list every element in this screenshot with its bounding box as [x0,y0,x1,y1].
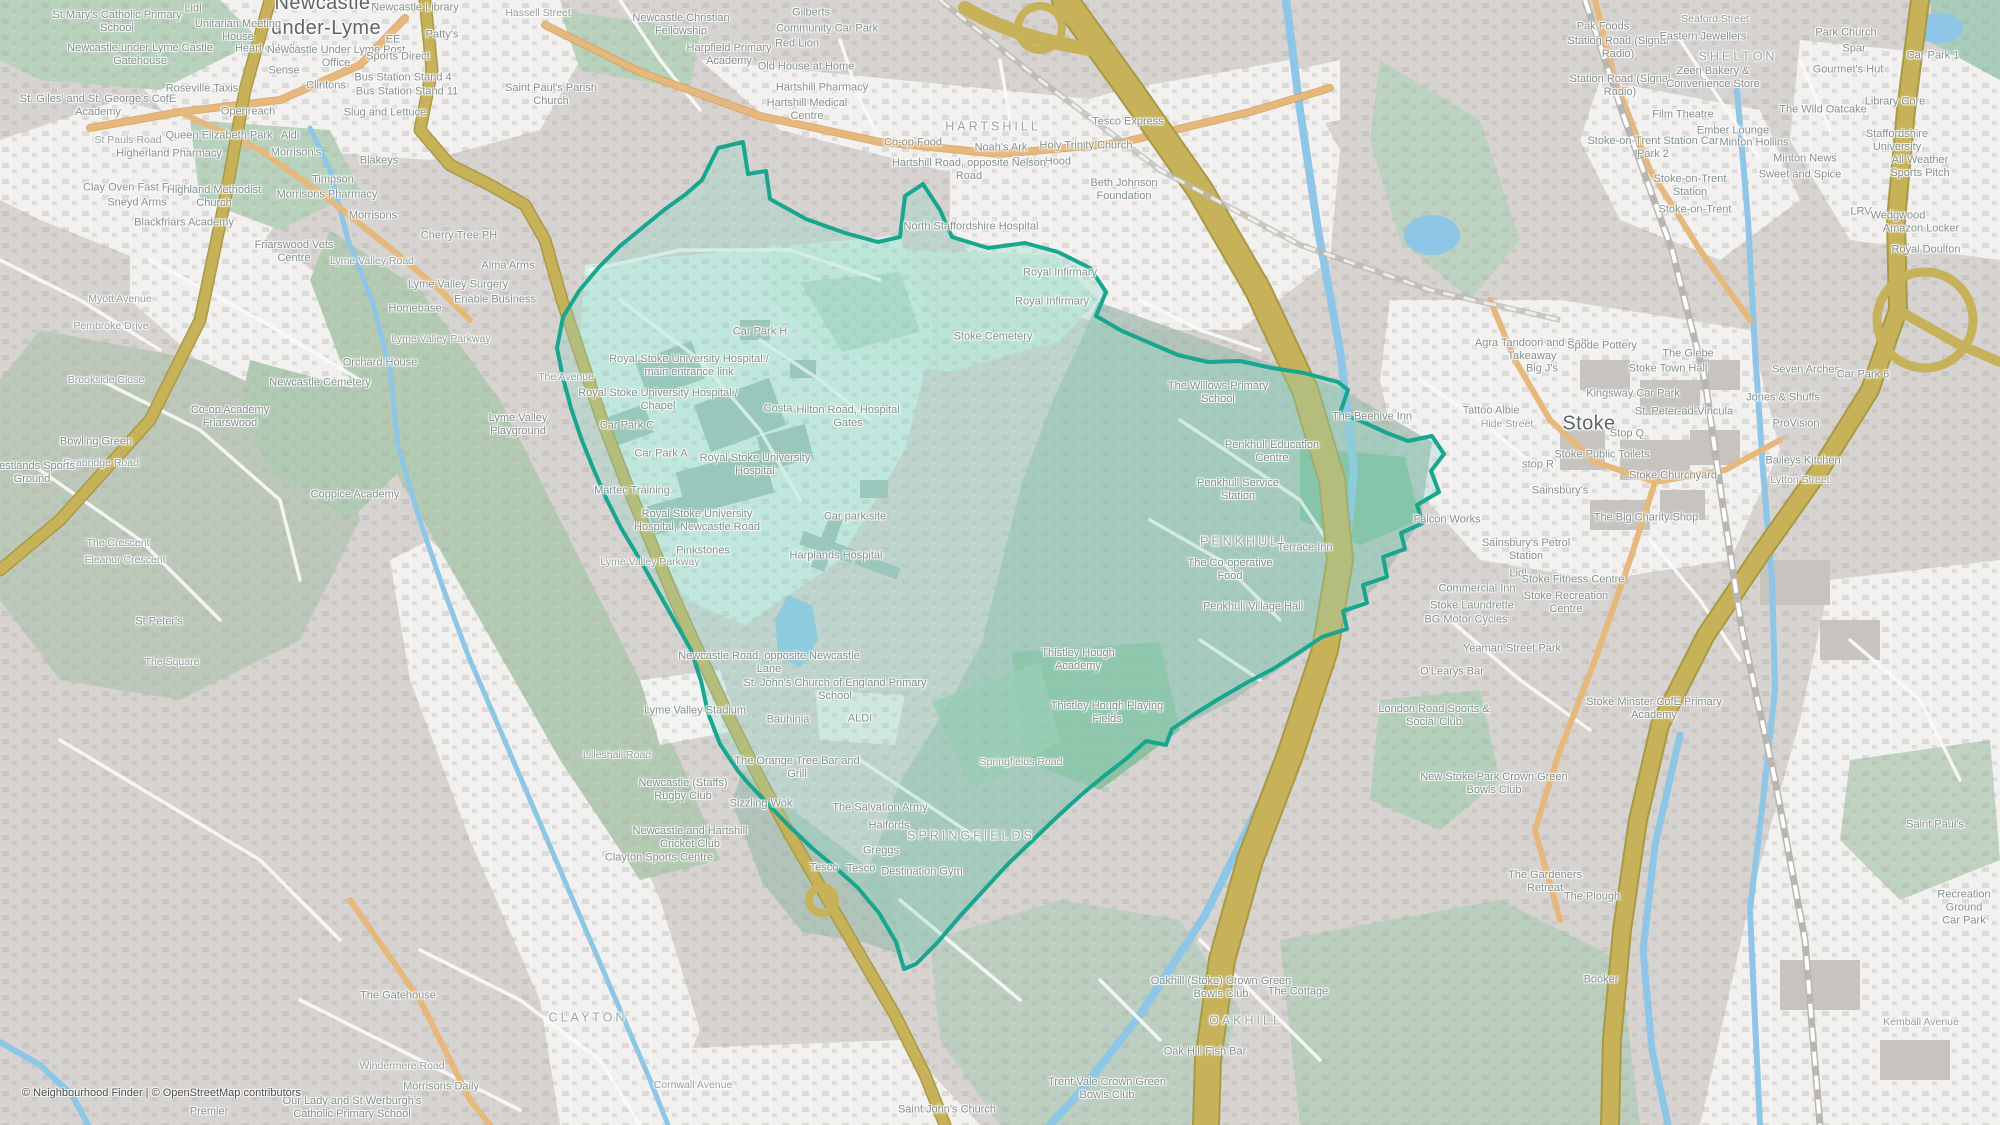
road-label: St Pauls Road [94,134,161,146]
district-label: SHELTON [1699,50,1778,65]
poi-label: Newcastle Christian Fellowship [616,12,746,38]
road-label: The Avenue [538,371,594,383]
poi-label: Jones & Shuffs [1746,392,1820,405]
poi-label: Minton Hollins [1719,137,1788,150]
poi-label: Orchard House [343,357,418,370]
poi-label: Falcon Works [1413,514,1480,527]
poi-label: Holy Trinity Church [1040,140,1133,153]
poi-label: Stoke Laundrette [1430,600,1514,613]
poi-label: Costa [764,403,793,416]
poi-label: Thistley Hough Academy [1018,647,1138,673]
poi-label: The Plough [1564,891,1620,904]
poi-label: Stoke-on-Trent Station Car Park 2 [1578,135,1728,161]
poi-label: Penkhull Education Centre [1212,439,1332,465]
road-label: Kemball Avenue [1883,1016,1959,1028]
poi-label: Old House at Home [758,61,855,74]
poi-label: Penkhull Service Station [1183,477,1293,503]
poi-label: Royal Doulton [1891,244,1960,257]
poi-label: EE [386,34,401,47]
poi-label: Co-op Academy Friarswood [170,404,290,430]
poi-label: Bus Station Stand 4 [354,72,451,85]
poi-label: Spar [1842,43,1865,56]
poi-label: The Glebe [1662,348,1713,361]
poi-label: stop R [1522,459,1554,472]
road-label: Hide Street [1481,418,1534,430]
poi-label: Newcastle Under Lyme Post Office [256,44,416,70]
poi-label: Stoke Town Hall [1629,363,1708,376]
poi-label: The Co-operative Food [1175,557,1285,583]
poi-label: Gilberts [792,7,830,20]
poi-label: Hartshill Road, opposite Nelson Road [879,157,1059,183]
poi-label: Lyme Valley Stadium [644,705,746,718]
poi-label: Thistley Hough Playing Fields [1047,700,1167,726]
road-label: Cornwall Avenue [654,1079,733,1091]
poi-label: Station Road (Signal Radio) [1565,73,1675,99]
poi-label: Beth Johnson Foundation [1069,177,1179,203]
poi-label: Lyme Valley Playground [468,412,568,438]
road-label: Brookside Close [68,374,144,386]
poi-label: Highland Methodist Church [159,184,269,210]
poi-label: Saint Paul's Parish Church [496,82,606,108]
road-label: Myott Avenue [88,293,151,305]
poi-label: Royal Stoke University Hospital / Chapel [573,387,743,413]
poi-label: Spode Pottery [1567,340,1637,353]
poi-label: Car Park 1 [1907,50,1960,63]
poi-label: Penkhull Village Hall [1203,601,1303,614]
poi-label: Hartshill Pharmacy [776,82,868,95]
poi-label: ALDI [848,713,872,726]
poi-label: Harplands Hospital [790,550,883,563]
poi-label: Amazon Locker [1883,223,1959,236]
poi-label: Royal Infirmary [1023,267,1097,280]
poi-label: Blackfriars Academy [134,217,234,230]
poi-label: London Road Sports & Social Club [1364,703,1504,729]
poi-label: Royal Stoke University Hospital, Newcast… [622,508,772,534]
road-label: The Square [145,656,200,668]
poi-label: Baileys Kitchen [1765,455,1840,468]
poi-label: Robin Hood [1013,156,1071,169]
poi-label: Greggs [863,845,899,858]
poi-label: Seven Arches [1772,364,1840,377]
poi-label: Lidl [1509,568,1526,581]
poi-label: LRV [1850,206,1871,219]
city-label: Newcastle-under-Lyme [261,0,391,41]
poi-label: Morrisons Daily [403,1081,479,1094]
poi-label: Sense [268,65,299,78]
poi-label: Hartshill Medical Centre [752,97,862,123]
road-label: Seabridge Road [63,457,139,469]
poi-label: Recreation Ground Car Park [1937,889,1990,928]
poi-label: Sports Direct [366,51,430,64]
poi-label: Westlands Sports Ground [0,460,82,486]
poi-label: Openreach [221,106,275,119]
poi-label: Car Park 6 [1837,369,1890,382]
road-label: Pembroke Drive [73,320,148,332]
poi-label: Minton News [1773,153,1837,166]
poi-label: St. John's Church of England Primary Sch… [740,677,930,703]
district-label: CLAYTON [549,1011,628,1026]
poi-label: Sainsbury's [1532,485,1589,498]
poi-label: St Mary's Catholic Primary School [42,9,192,35]
poi-label: Destination Gym [881,866,962,879]
poi-label: The Beehive Inn [1332,411,1412,424]
poi-label: Tesco [847,863,876,876]
poi-label: The Gatehouse [360,990,436,1003]
poi-label: Tesco [810,862,839,875]
poi-label: Halfords [869,820,910,833]
poi-label: Clayton Sports Centre [605,852,713,865]
poi-label: Aldi [281,130,299,143]
poi-label: Newcastle Library [371,2,458,15]
road-label: Lilleshall Road [583,749,651,761]
poi-label: BG Motor Cycles [1424,614,1507,627]
poi-label: Stoke Minster CofE Primary Academy [1579,696,1729,722]
poi-label: Blakeys [360,155,399,168]
poi-label: Zeen Bakery & Convenience Store [1643,65,1783,91]
poi-label: The Willows Primary School [1158,380,1278,406]
poi-label: Stoke-on-Trent Station [1635,173,1745,199]
poi-label: Film Theatre [1652,109,1714,122]
poi-label: Lidl [184,3,201,16]
poi-label: Queen Elizabeth Park [165,130,272,143]
poi-label: Newcastle Cemetery [269,377,370,390]
poi-label: All Weather Sports Pitch [1880,154,1960,180]
poi-label: The Gardeners Retreat [1495,869,1595,895]
district-label: SPRINGFIELDS [907,829,1035,844]
poi-label: Saint Paul's [1906,819,1964,832]
poi-label: The Salvation Army [832,802,927,815]
poi-label: Slug and Lettuce [344,107,427,120]
poi-label: Morrisons [349,210,397,223]
poi-label: Newcastle under Lyme Castle Gatehouse [55,42,225,68]
poi-label: Harpfield Primary Academy [669,42,789,68]
poi-label: The Wild Oatcake [1779,104,1866,117]
poi-label: Premier [190,1106,229,1119]
poi-label: New Stoke Park Crown Green Bowls Club [1419,771,1569,797]
poi-label: Bauhinia [767,714,810,727]
poi-label: Pak Foods [1577,21,1630,34]
poi-label: Enable Business [454,294,536,307]
poi-label: North Staffordshire Hospital [904,221,1039,234]
road-label: Springfields Road [980,756,1063,768]
poi-label: Stop Q [1610,428,1644,441]
road-label: Lytton Street [1770,474,1829,486]
poi-label: Pinkstones [676,545,730,558]
poi-label: Martec Training [594,485,670,498]
poi-label: Patty's [426,29,459,42]
poi-label: Red Lion [775,38,819,51]
poi-label: Gourmet's Hut [1813,64,1884,77]
road-label: The Crescent [86,537,149,549]
poi-label: St Peter's [135,616,182,629]
poi-label: The Orange Tree Bar and Grill [732,755,862,781]
road-label: Seaford Street [1681,13,1749,25]
poi-label: Roseville Taxis [166,83,239,96]
poi-label: Bowling Green [60,436,132,449]
poi-label: Sweet and Spice [1759,169,1842,182]
poi-label: The Cottage [1268,986,1329,999]
poi-label: Eastern Jewellers [1660,31,1747,44]
poi-label: Stoke Cemetery [954,331,1033,344]
poi-label: Commercial Inn [1438,583,1515,596]
poi-label: Bus Station Stand 11 [356,86,459,99]
poi-label: Stoke Recreation Centre [1511,590,1621,616]
poi-label: Friarswood Vets Centre [239,239,349,265]
poi-label: St. Peter-ad-Vincula [1635,406,1733,419]
poi-label: Community Car Park [776,23,878,36]
poi-label: The Big Charity Shop [1594,512,1699,525]
poi-label: Car Park C [600,420,654,433]
poi-label: Car park site [824,511,886,524]
road-label: Lyme Valley Parkway [391,333,490,345]
poi-label: Car Park H [733,326,787,339]
poi-label: Sizzling Wok [730,798,793,811]
poi-label: Oakhill (Stoke) Crown Green Bowls Club [1141,975,1301,1001]
poi-label: Agra Tandoori and Balti Takeaway [1462,337,1602,363]
map-attribution[interactable]: © Neighbourhood Finder | © OpenStreetMap… [22,1087,301,1099]
poi-label: Heart of India [235,43,301,56]
poi-label: Cherry Tree PH [421,230,497,243]
poi-label: Sainsbury's Petrol Station [1476,537,1576,563]
road-label: Lyme Valley Road [330,255,414,267]
poi-label: Clintons [306,80,346,93]
poi-label: Royal Stoke University Hospital [690,452,820,478]
city-label: Stoke [1562,412,1615,437]
poi-label: Booker [1584,974,1619,987]
poi-label: Staffordshire University [1846,128,1949,154]
poi-label: Saint John's Church [898,1104,996,1117]
poi-label: ProVision [1773,418,1820,431]
poi-label: Big J's [1526,363,1558,376]
poi-label: St. Giles' and St. George's CofE Academy [18,93,178,119]
poi-label: Stoke Churchyard [1629,470,1717,483]
poi-label: Noah's Ark [975,142,1028,155]
poi-label: Higherland Pharmacy [116,148,222,161]
poi-label: Tattoo Albie [1463,405,1520,418]
poi-label: Tesco Express [1092,116,1164,129]
road-label: Windermere Road [359,1060,444,1072]
poi-label: Royal Infirmary [1015,296,1089,309]
poi-label: Park Church [1815,27,1876,40]
poi-label: Alma Arms [481,260,534,273]
poi-label: Clay Oven Fast Food [83,182,187,195]
poi-label: Newcastle (Staffs) Rugby Club [628,777,738,803]
poi-label: Wedgwood [1871,210,1926,223]
poi-label: Stoke Fitness Centre [1522,574,1625,587]
poi-label: Trent Vale Crown Green Bowls Club [1037,1076,1177,1102]
poi-label: O'Learys Bar [1420,666,1484,679]
district-label: HARTSHILL [945,120,1041,135]
poi-label: Homebase [388,303,441,316]
poi-label: Morrisons Pharmacy [277,189,378,202]
poi-label: Library Core [1865,96,1926,109]
poi-label: Unitarian Meeting House [183,18,293,44]
district-label: PENKHULL [1200,535,1290,550]
poi-label: Lyme Valley Surgery [408,279,508,292]
poi-label: Station Road (Signal Radio) [1563,35,1673,61]
road-label: Eleanor Crescent [84,554,165,566]
poi-label: Co-op Food [884,137,942,150]
poi-label: Coppice Academy [311,489,400,502]
poi-label: Sneyd Arms [107,197,166,210]
poi-label: Royal Stoke University Hospital / main e… [604,353,774,379]
map-canvas[interactable]: Newcastle-under-LymeStokeHARTSHILLSHELTO… [0,0,2000,1125]
road-label: Lyme Valley Parkway [600,556,699,568]
poi-label: Oak Hill Fish Bar [1164,1046,1247,1059]
poi-label: Newcastle Road, opposite Newcastle Lane [674,650,864,676]
label-layer: Newcastle-under-LymeStokeHARTSHILLSHELTO… [0,0,2000,1125]
poi-label: Ember Lounge [1697,125,1769,138]
poi-label: Yeaman Street Park [1463,643,1561,656]
poi-label: Kingsway Car Park [1586,388,1680,401]
poi-label: Timpson [312,174,354,187]
poi-label: Car Park A [634,448,687,461]
poi-label: Morrison's [271,147,321,160]
poi-label: Terrace Inn [1277,542,1332,555]
poi-label: Stoke Public Toilets [1554,449,1649,462]
district-label: OAKHILL [1209,1014,1283,1029]
poi-label: Newcastle and Hartshill Cricket Club [625,825,755,851]
poi-label: Stoke-on-Trent [1659,204,1732,217]
road-label: Hassell Street [505,7,570,19]
poi-label: Hilton Road, Hospital Gates [793,404,903,430]
